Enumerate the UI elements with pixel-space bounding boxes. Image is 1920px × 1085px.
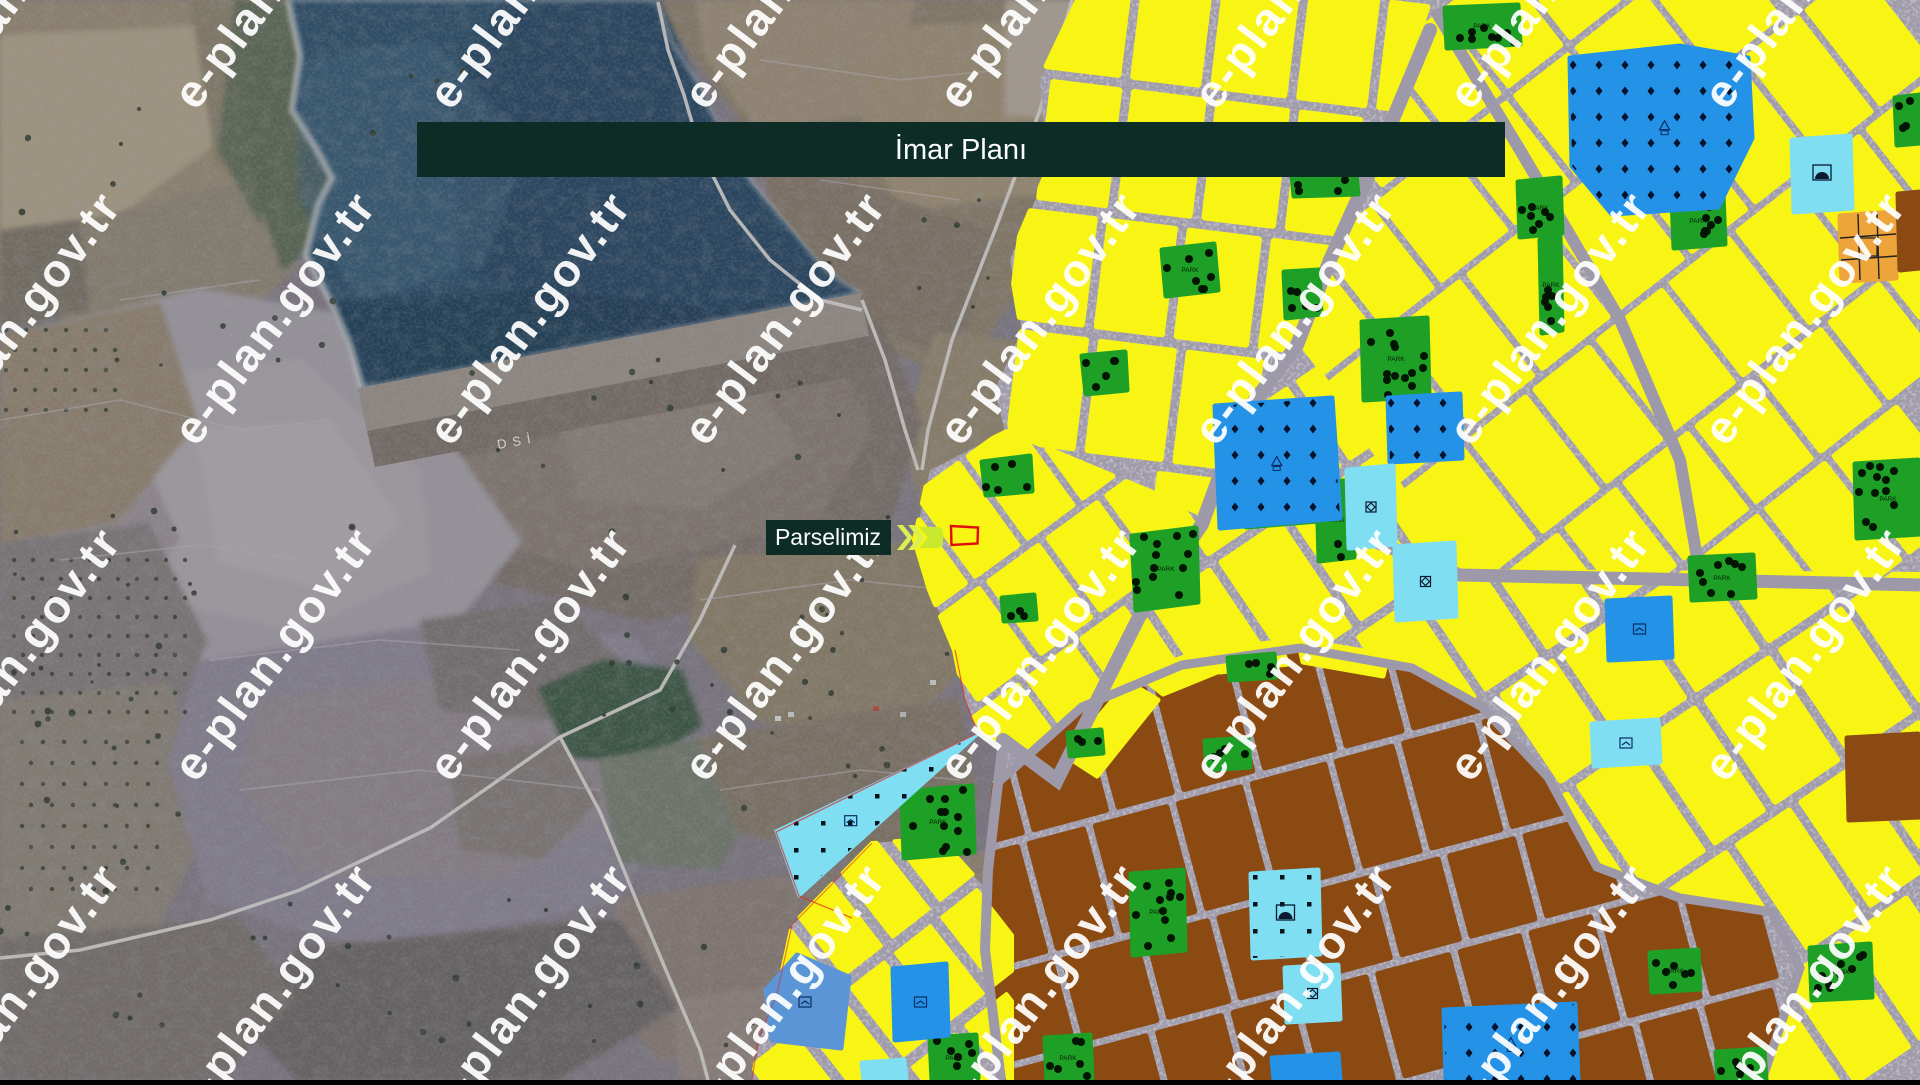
svg-text:İmar Planı: İmar Planı — [895, 133, 1027, 166]
svg-text:Parselimiz: Parselimiz — [775, 524, 881, 550]
